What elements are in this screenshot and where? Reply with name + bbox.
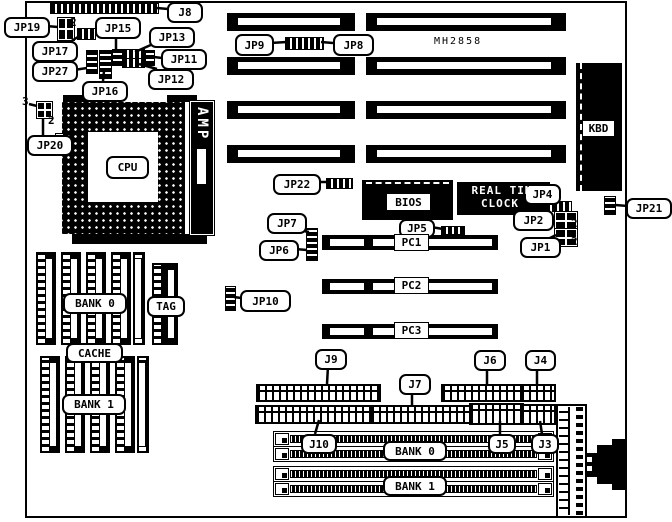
- pin-number-label: 2: [571, 217, 578, 230]
- sram-chip: [36, 252, 56, 345]
- isa-slot: [227, 101, 355, 119]
- header-connector: [441, 384, 523, 402]
- amp-label: AMP: [194, 107, 210, 141]
- sram-chip: [133, 252, 145, 345]
- jumper-component: [441, 226, 465, 235]
- label-jp12: JP12: [148, 69, 194, 90]
- label-j7: J7: [399, 374, 431, 395]
- pci-slot-key: [364, 235, 373, 250]
- label-pc1: PC1: [394, 234, 429, 251]
- label-simm-bank0: BANK 0: [383, 441, 447, 461]
- header-connector: [469, 403, 524, 425]
- power-connector-pins: [559, 407, 570, 515]
- label-jp20: JP20: [27, 135, 73, 156]
- label-jp16: JP16: [82, 81, 128, 102]
- keyboard-din-notch: [587, 457, 592, 462]
- simm-latch-left: [275, 468, 289, 480]
- isa-slot: [227, 13, 355, 31]
- pin-number-label: 2: [571, 235, 578, 248]
- simm-latch-left: [275, 483, 289, 495]
- label-jp22: JP22: [273, 174, 321, 195]
- label-j4: J4: [525, 350, 556, 371]
- jumper-component: [285, 37, 324, 50]
- jumper-component: [77, 28, 96, 40]
- label-jp13: JP13: [149, 27, 195, 48]
- jumper-component: [306, 228, 318, 261]
- isa-slot: [366, 13, 566, 31]
- label-jp6: JP6: [259, 240, 299, 261]
- label-rtc-line2: CLOCK: [470, 197, 530, 209]
- isa-slot: [366, 145, 566, 163]
- chip-body: [45, 258, 53, 339]
- header-connector: [520, 384, 556, 402]
- pin-number-label: 2: [48, 114, 55, 127]
- chip-body: [138, 362, 146, 447]
- chip-pins: [38, 254, 45, 343]
- amp-bar: [197, 149, 206, 184]
- sram-chip: [40, 356, 60, 453]
- keyboard-din-connector: [612, 439, 625, 490]
- jumper-component: [604, 196, 616, 215]
- label-simm-bank1: BANK 1: [383, 476, 447, 496]
- label-j10: J10: [301, 434, 337, 454]
- simm-latch-left: [275, 448, 289, 460]
- label-jp17: JP17: [32, 41, 78, 62]
- label-j9: J9: [315, 349, 347, 370]
- label-cache-tag: TAG: [147, 296, 185, 317]
- amp-module: AMP: [189, 100, 215, 236]
- label-jp2: JP2: [513, 210, 554, 231]
- label-rtc-line1: REAL TIM: [462, 184, 542, 196]
- pin-number-label: 3: [22, 95, 29, 108]
- jumper-component: [122, 58, 145, 68]
- jumper-component: [225, 286, 236, 311]
- label-j8: J8: [167, 2, 203, 23]
- label-pc2: PC2: [394, 277, 429, 294]
- isa-slot: [366, 101, 566, 119]
- label-mh2858: MH2858: [434, 35, 494, 47]
- label-jp27: JP27: [32, 61, 78, 82]
- label-j6: J6: [474, 350, 506, 371]
- label-cache-bank1: BANK 1: [62, 394, 126, 415]
- power-connector: [556, 404, 587, 518]
- pin-number-label: 2: [70, 16, 77, 29]
- jumper-component: [99, 50, 112, 79]
- label-pc3: PC3: [394, 322, 429, 339]
- label-jp15: JP15: [95, 17, 141, 39]
- pci-slot-key: [364, 279, 373, 294]
- socket-bottom-bar: [72, 234, 207, 244]
- jumper-component: [50, 3, 159, 14]
- isa-slot: [227, 57, 355, 75]
- simm-latch-right: [538, 483, 552, 495]
- jumper-component: [145, 50, 155, 66]
- label-cache-cache: CACHE: [66, 343, 123, 363]
- isa-slot: [227, 145, 355, 163]
- chip-body: [134, 258, 142, 339]
- keyboard-din-connector: [597, 445, 613, 484]
- simm-latch-left: [275, 433, 289, 445]
- label-jp9: JP9: [235, 34, 274, 56]
- label-j5: J5: [488, 434, 516, 454]
- motherboard-diagram: AMP J8JP19JP15JP13JP17JP27JP11JP12JP16JP…: [0, 0, 672, 522]
- header-connector: [255, 405, 372, 424]
- label-jp10: JP10: [240, 290, 291, 312]
- label-jp19: JP19: [4, 17, 50, 38]
- power-connector-keys: [576, 407, 583, 515]
- label-cache-bank0: BANK 0: [63, 293, 127, 314]
- sram-chip: [137, 356, 149, 453]
- header-connector: [256, 384, 381, 402]
- label-cpu-label: CPU: [106, 156, 149, 179]
- label-jp8: JP8: [333, 34, 374, 56]
- label-jp21: JP21: [626, 198, 672, 219]
- isa-slot: [366, 57, 566, 75]
- header-connector: [520, 404, 556, 425]
- label-j3: J3: [531, 434, 559, 454]
- pci-slot-key: [364, 324, 373, 339]
- chip-pins: [42, 358, 49, 451]
- jumper-component: [326, 178, 353, 189]
- label-bios-label: BIOS: [386, 193, 431, 211]
- label-jp7: JP7: [267, 213, 307, 234]
- chip-body: [49, 362, 57, 447]
- label-jp1: JP1: [520, 237, 561, 258]
- label-jp11: JP11: [161, 49, 207, 70]
- label-kbd-label: KBD: [582, 120, 615, 137]
- simm-latch-right: [538, 468, 552, 480]
- header-connector: [370, 405, 474, 424]
- jumper-component: [86, 50, 98, 74]
- keyboard-din-notch: [587, 466, 592, 471]
